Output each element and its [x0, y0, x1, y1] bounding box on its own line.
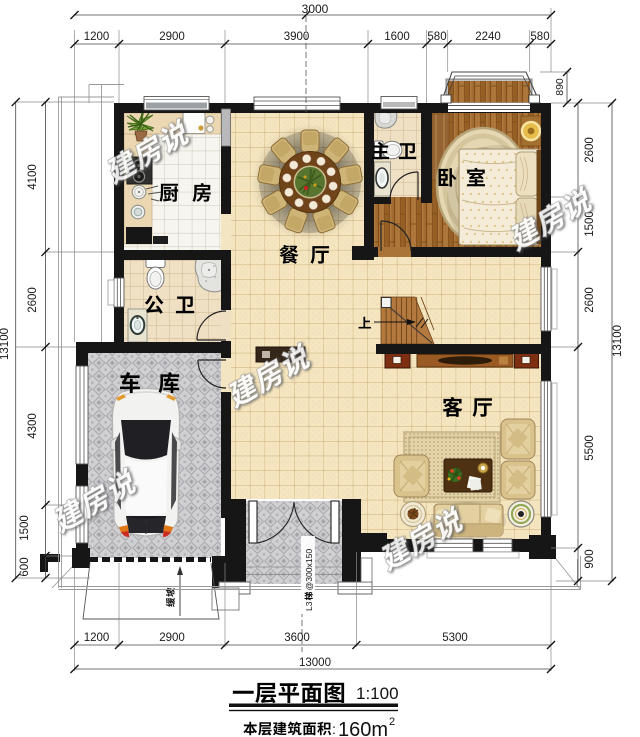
svg-text::: : [332, 721, 336, 737]
svg-text:1200: 1200 [84, 31, 110, 43]
svg-text:2600: 2600 [584, 137, 596, 163]
svg-text:13000: 13000 [299, 657, 331, 669]
svg-text:3900: 3900 [284, 31, 310, 43]
svg-text:2900: 2900 [159, 632, 185, 644]
svg-text:580: 580 [427, 31, 446, 43]
svg-text:4300: 4300 [27, 413, 39, 439]
svg-text:900: 900 [584, 549, 596, 568]
svg-text:2600: 2600 [584, 287, 596, 313]
svg-text:160m: 160m [338, 719, 388, 737]
svg-text:1:100: 1:100 [356, 684, 399, 703]
svg-text:3000: 3000 [302, 2, 329, 16]
svg-text:2900: 2900 [159, 31, 185, 43]
svg-text:2: 2 [389, 716, 395, 728]
svg-text:580: 580 [530, 31, 549, 43]
svg-text:2600: 2600 [27, 287, 39, 313]
svg-text:5500: 5500 [584, 435, 596, 461]
svg-text:3600: 3600 [284, 632, 310, 644]
svg-text:4100: 4100 [27, 164, 39, 190]
svg-text:2240: 2240 [475, 31, 501, 43]
svg-text:890: 890 [554, 78, 566, 96]
svg-text:@300x150: @300x150 [304, 549, 314, 591]
svg-text:1500: 1500 [584, 211, 596, 237]
svg-text:1600: 1600 [384, 31, 410, 43]
svg-text:13100: 13100 [0, 328, 11, 360]
svg-text:13100: 13100 [612, 325, 624, 357]
svg-text:600: 600 [19, 557, 31, 576]
svg-text:1200: 1200 [84, 632, 110, 644]
svg-text:1500: 1500 [19, 515, 31, 541]
svg-text:5300: 5300 [442, 632, 468, 644]
svg-text:L3: L3 [304, 601, 314, 611]
